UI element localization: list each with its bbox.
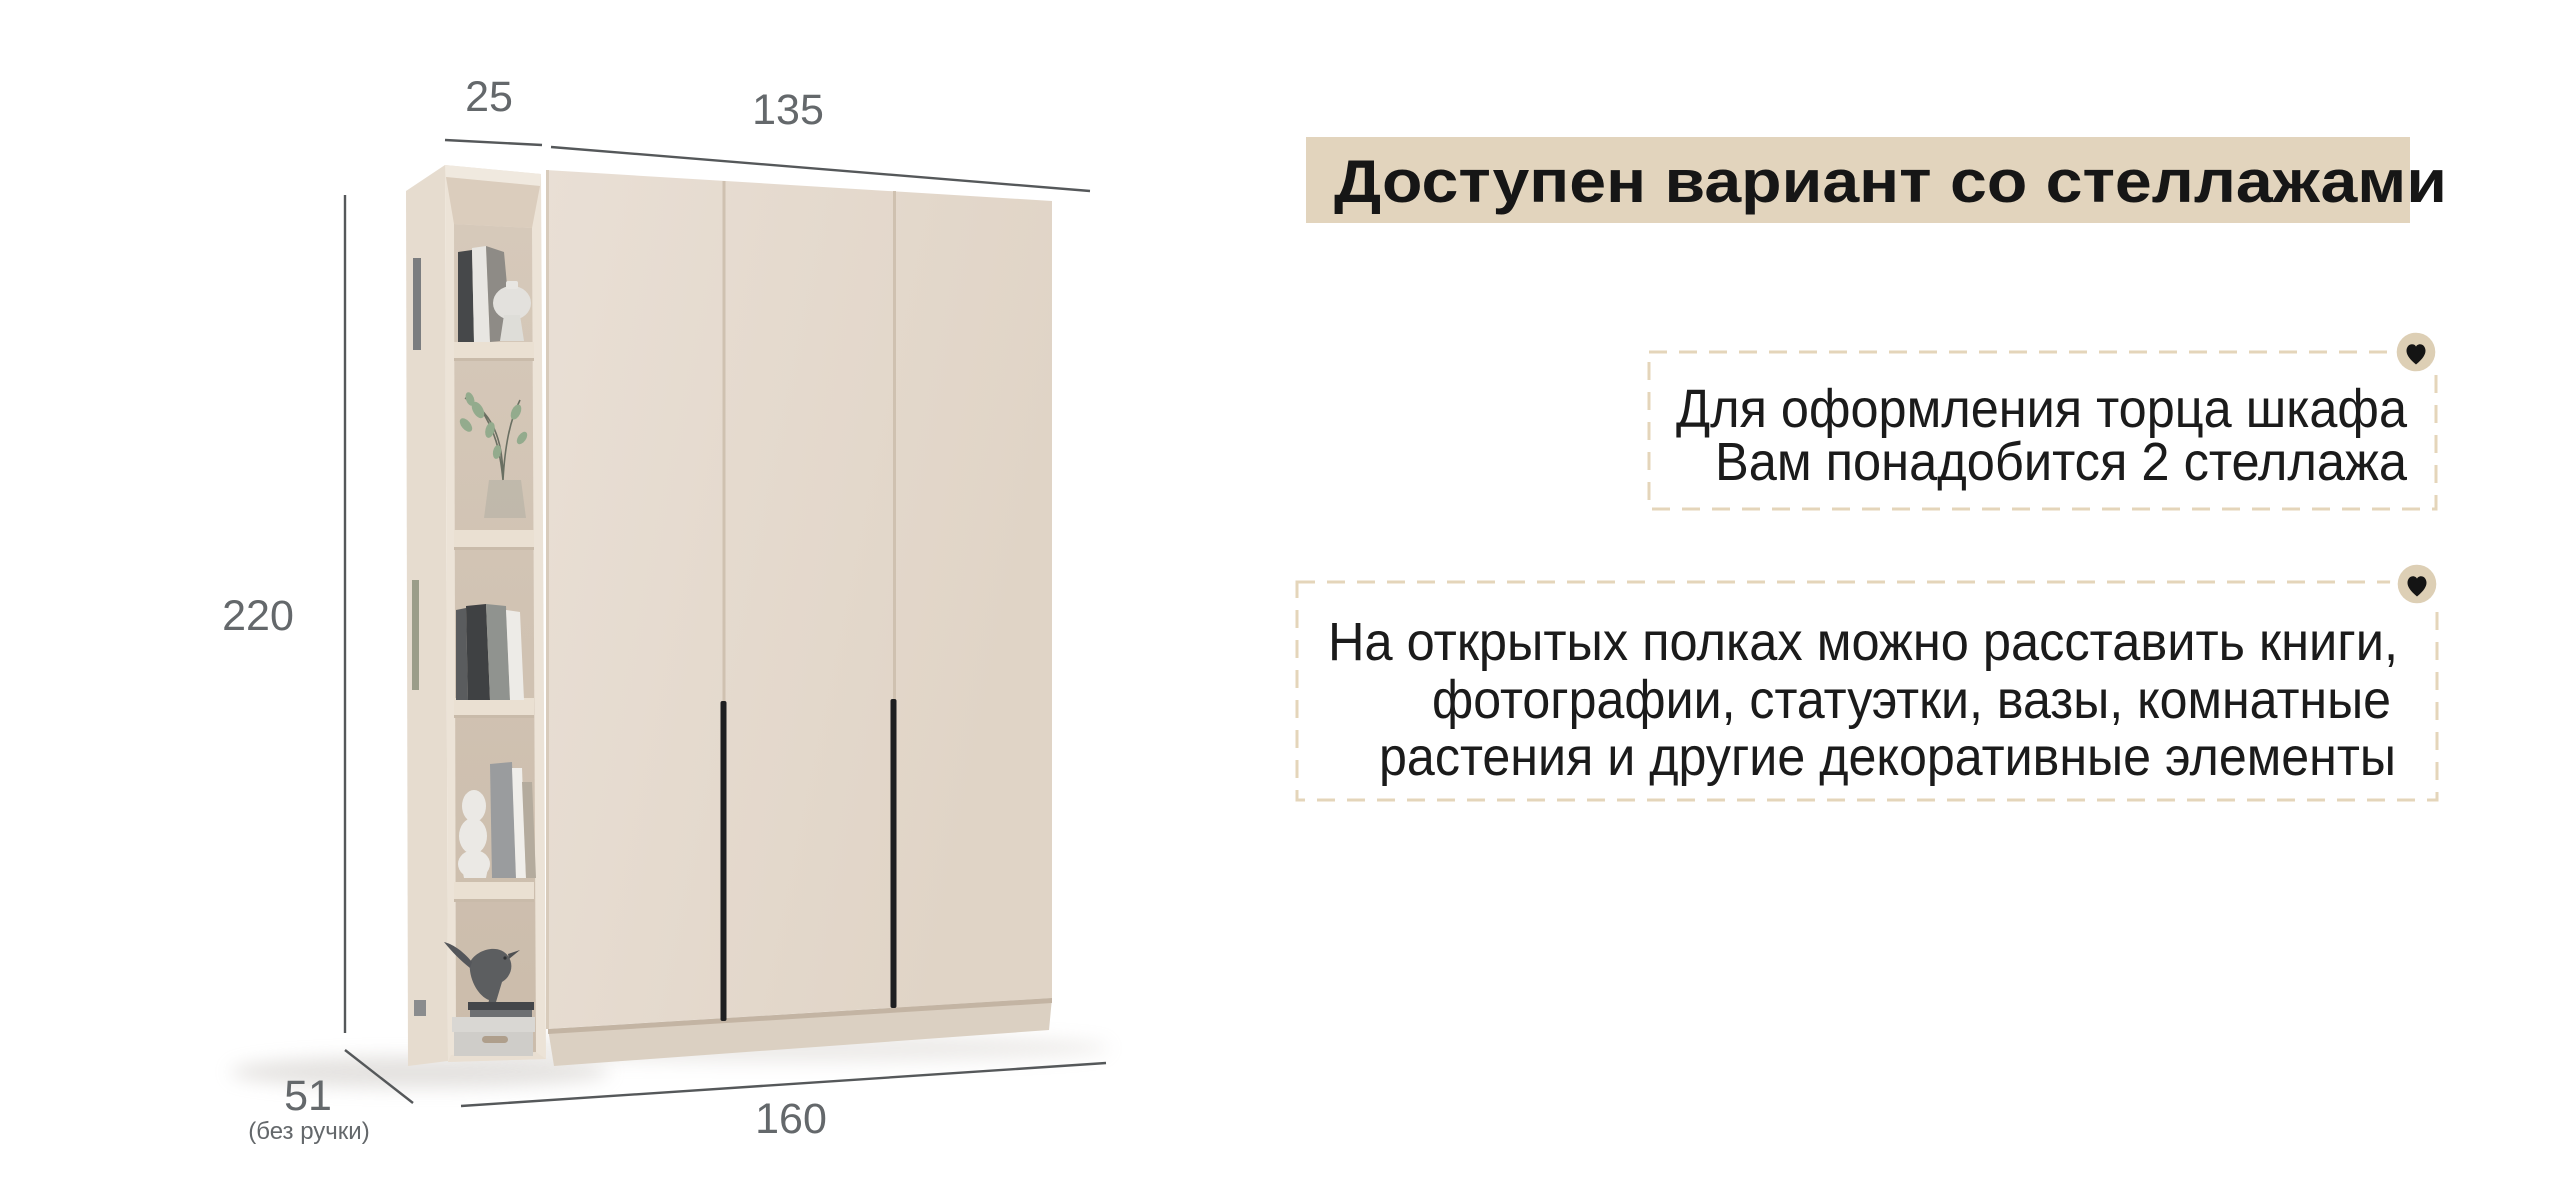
- svg-text:Доступен вариант со стеллажами: Доступен вариант со стеллажами: [1334, 148, 2447, 215]
- svg-text:160: 160: [755, 1095, 827, 1143]
- svg-text:51: 51: [284, 1072, 332, 1120]
- svg-text:фотографии, статуэтки, вазы, к: фотографии, статуэтки, вазы, комнатные: [1432, 670, 2391, 730]
- svg-text:135: 135: [752, 86, 824, 134]
- svg-text:(без ручки): (без ручки): [248, 1118, 369, 1145]
- svg-text:220: 220: [222, 592, 294, 640]
- svg-text:Вам понадобится 2 стеллажа: Вам понадобится 2 стеллажа: [1715, 432, 2408, 492]
- svg-text:растения и другие декоративные: растения и другие декоративные элементы: [1379, 727, 2396, 787]
- svg-text:На открытых полках можно расст: На открытых полках можно расставить книг…: [1328, 612, 2398, 672]
- svg-text:Для оформления торца шкафа: Для оформления торца шкафа: [1676, 379, 2408, 439]
- svg-text:25: 25: [465, 73, 513, 121]
